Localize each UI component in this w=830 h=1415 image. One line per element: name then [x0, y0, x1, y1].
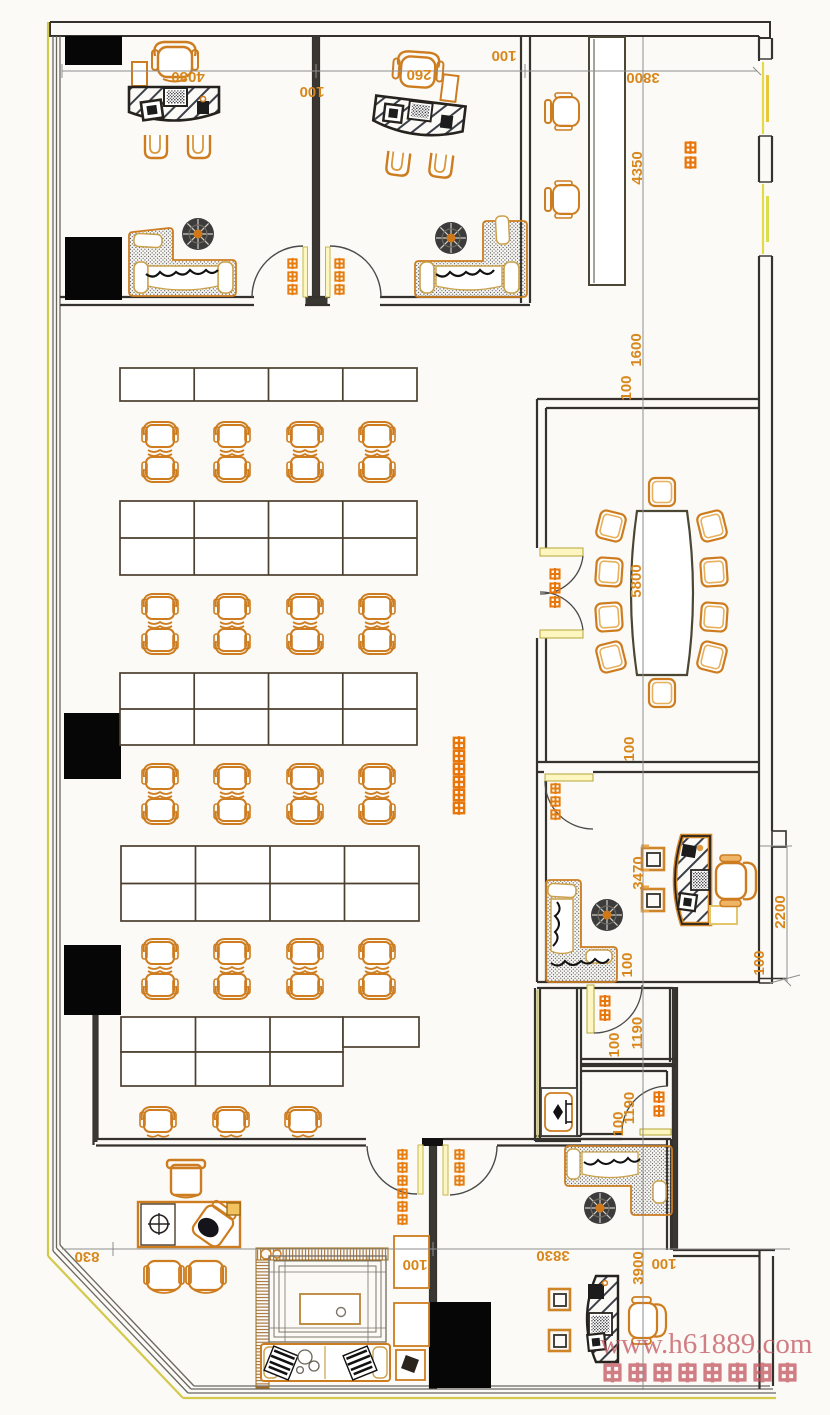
svg-text:2200: 2200: [772, 895, 789, 928]
svg-text:100: 100: [402, 1256, 427, 1273]
svg-text:100: 100: [610, 1111, 627, 1136]
svg-text:1600: 1600: [628, 333, 645, 366]
svg-text:100: 100: [618, 375, 635, 400]
svg-text:1190: 1190: [629, 1017, 646, 1050]
svg-text:3830: 3830: [536, 1247, 569, 1264]
svg-text:4350: 4350: [629, 151, 646, 184]
svg-text:100: 100: [491, 47, 516, 64]
svg-text:100: 100: [751, 950, 768, 975]
svg-text:www.h61889.com: www.h61889.com: [600, 1328, 813, 1360]
svg-text:3800: 3800: [626, 69, 659, 86]
svg-text:100: 100: [621, 736, 638, 761]
svg-text:100: 100: [651, 1255, 676, 1272]
svg-text:830: 830: [74, 1248, 99, 1265]
svg-text:260: 260: [406, 66, 431, 83]
svg-text:100: 100: [606, 1032, 623, 1057]
svg-text:3470: 3470: [630, 856, 647, 889]
svg-text:100: 100: [619, 952, 636, 977]
svg-text:3900: 3900: [630, 1251, 647, 1284]
svg-text:100: 100: [299, 83, 324, 100]
svg-text:5800: 5800: [628, 564, 645, 597]
svg-text:4080: 4080: [171, 68, 204, 85]
